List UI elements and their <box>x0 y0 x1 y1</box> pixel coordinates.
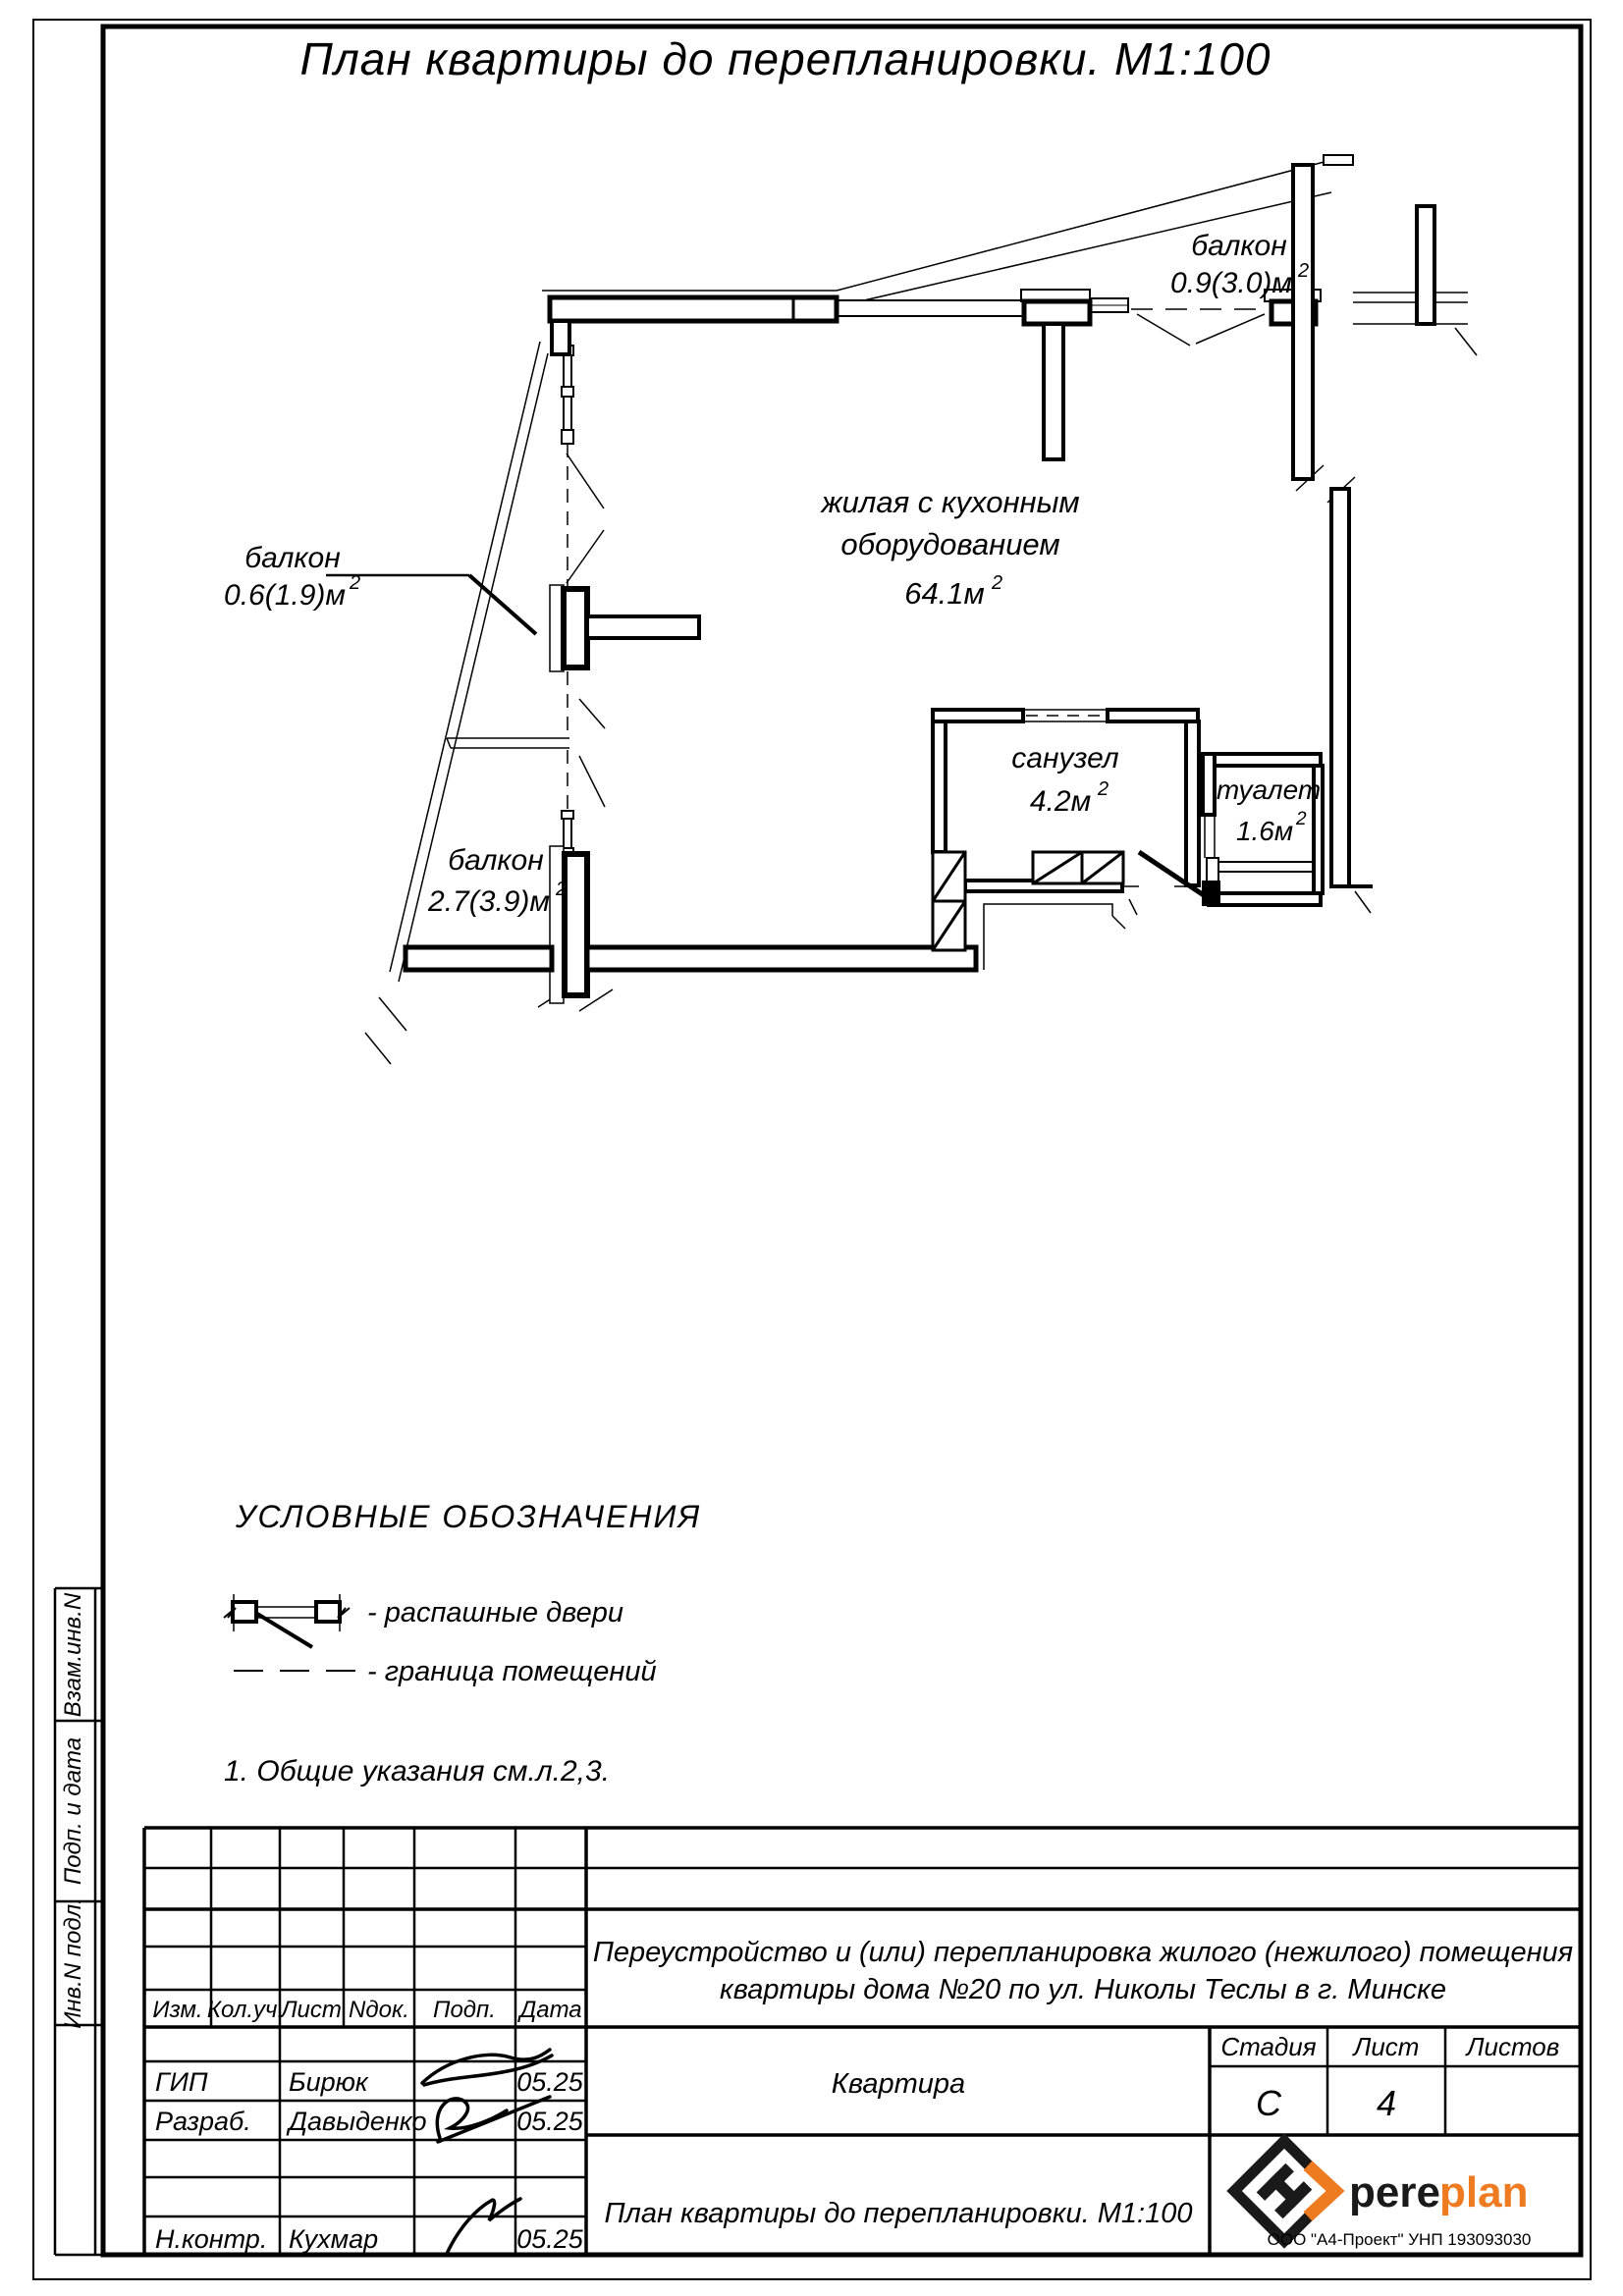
legend-boundary-label: - граница помещений <box>367 1656 657 1687</box>
balcony-low-area: 2.7(3.9)м <box>427 885 550 918</box>
logo-chevron-icon <box>1308 2165 1335 2216</box>
bathroom-area-sup: 2 <box>1097 778 1109 800</box>
balcony-top-label: балкон <box>1191 230 1287 262</box>
legend: УСЛОВНЫЕ ОБОЗНАЧЕНИЯ - распашные двери -… <box>224 1499 701 1788</box>
row-razrab-name: Давыденко <box>286 2107 427 2136</box>
row-razrab-role: Разраб. <box>155 2107 251 2136</box>
living-room-area-sup: 2 <box>991 572 1002 594</box>
col-data: Дата <box>516 1997 581 2023</box>
row-nkontr-name: Кухмар <box>289 2224 378 2254</box>
row-gip-role: ГИП <box>155 2067 208 2097</box>
balcony-low-area-sup: 2 <box>555 879 567 900</box>
col-podp: Подп. <box>433 1997 496 2023</box>
stage-label: Стадия <box>1220 2032 1316 2061</box>
general-note: 1. Общие указания см.л.2,3. <box>224 1755 610 1788</box>
sheet-label: Лист <box>1352 2032 1420 2061</box>
balcony-top-area: 0.9(3.0)м <box>1170 267 1292 299</box>
living-room-label2: оборудованием <box>840 527 1059 561</box>
sheet-value: 4 <box>1377 2083 1396 2123</box>
toilet-area-sup: 2 <box>1295 809 1307 829</box>
toilet-label: туалет <box>1217 774 1321 805</box>
bathroom-area: 4.2м <box>1030 785 1091 818</box>
row-razrab-date: 05.25 <box>516 2107 584 2136</box>
sheet-title: План квартиры до перепланировки. М1:100 <box>299 33 1271 84</box>
col-kol: Кол.уч. <box>207 1997 284 2023</box>
stage-value: С <box>1256 2083 1282 2123</box>
row-gip-name: Бирюк <box>289 2067 369 2097</box>
living-room-label: жилая с кухонным <box>819 485 1079 519</box>
row-nkontr-date: 05.25 <box>516 2224 584 2254</box>
row-nkontr-role: Н.контр. <box>155 2224 267 2254</box>
col-list: Лист <box>279 1997 342 2023</box>
toilet-area: 1.6м <box>1236 816 1293 846</box>
balcony-mid-area: 0.6(1.9)м <box>224 579 346 612</box>
balcony-mid-area-sup: 2 <box>349 572 360 594</box>
logo-diamond-icon <box>1234 2141 1334 2241</box>
floor-plan: жилая с кухонным оборудованием 64.1м 2 б… <box>224 155 1477 1064</box>
drawing-doc-title: План квартиры до перепланировки. М1:100 <box>605 2198 1193 2229</box>
drawing-sheet: План квартиры до перепланировки. М1:100 <box>0 0 1623 2296</box>
balcony-low-label: балкон <box>448 844 544 877</box>
sheets-label: Листов <box>1465 2032 1560 2061</box>
row-gip-date: 05.25 <box>516 2067 584 2097</box>
door-symbol <box>224 1594 350 1647</box>
legend-doors-label: - распашные двери <box>367 1597 623 1629</box>
plan-door-symbols <box>933 852 1204 950</box>
legend-header: УСЛОВНЫЕ ОБОЗНАЧЕНИЯ <box>235 1499 701 1534</box>
project-desc-line1: Переустройство и (или) перепланировка жи… <box>593 1937 1573 1968</box>
balcony-top-area-sup: 2 <box>1297 260 1309 282</box>
company-logo: pere plan ООО "А4-Проект" УНП 193093030 <box>1234 2141 1531 2249</box>
living-room-area: 64.1м <box>904 576 985 611</box>
col-izm: Изм. <box>152 1997 202 2023</box>
project-desc-line2: квартиры дома №20 по ул. Николы Теслы в … <box>720 1974 1446 2005</box>
side-label-inv: Инв.N подл. <box>60 1897 86 2029</box>
logo-company-line: ООО "А4-Проект" УНП 193093030 <box>1268 2230 1532 2249</box>
side-label-vzam: Взам.инв.N <box>60 1592 86 1717</box>
side-label-podp: Подп. и дата <box>60 1737 86 1885</box>
logo-text-black: pere <box>1349 2168 1440 2216</box>
side-stamp-labels: Взам.инв.N Подп. и дата Инв.N подл. <box>60 1592 86 2029</box>
signature-nkontr <box>447 2199 520 2254</box>
col-ndok: Nдок. <box>349 1997 409 2023</box>
balcony-mid-label: балкон <box>244 542 341 574</box>
bathroom-label: санузел <box>1011 742 1118 774</box>
object-name: Квартира <box>832 2068 965 2100</box>
logo-text-orange: plan <box>1439 2168 1528 2216</box>
plan-labels: жилая с кухонным оборудованием 64.1м 2 б… <box>224 230 1321 918</box>
